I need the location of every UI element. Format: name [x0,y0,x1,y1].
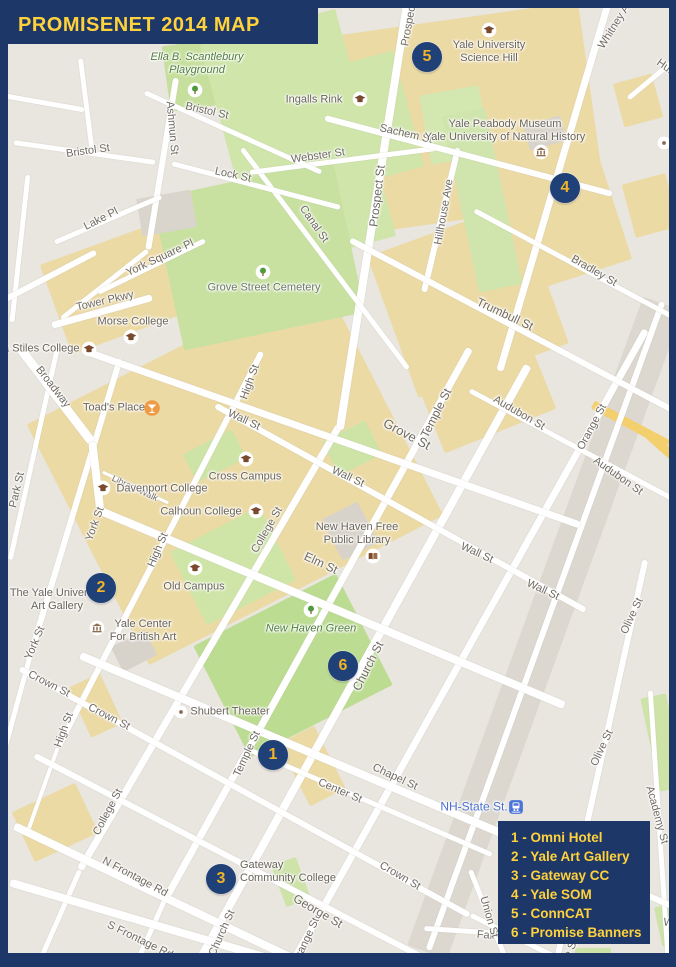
place-label: Ingalls Rink [286,94,343,107]
legend-item: 1 - Omni Hotel [511,828,650,847]
page-title: PROMISENET 2014 MAP [18,14,260,37]
place-label: Cross Campus [209,471,282,484]
map-marker-1: 1 [258,740,288,770]
graduation-cap-icon [352,91,368,107]
place-label: Morse College [98,316,169,329]
legend-item: 6 - Promise Banners [511,923,650,942]
map-screenshot-frame: Webster StBristol StBristol StAshmun StL… [0,0,676,967]
legend-item: 2 - Yale Art Gallery [511,847,650,866]
tree-icon [187,82,203,98]
street-label: Crown St [377,859,422,892]
road [78,58,95,153]
dot-icon [174,705,188,719]
graduation-cap-icon [81,341,97,357]
legend-item: 3 - Gateway CC [511,866,650,885]
map-marker-6: 6 [328,651,358,681]
place-label: Calhoun College [160,506,241,519]
place-label: New Haven Free Public Library [316,521,399,547]
street-label: Olive St [618,596,645,636]
street-label: Wall St [459,540,495,565]
map-marker-5: 5 [412,42,442,72]
graduation-cap-icon [123,329,139,345]
street-label: N Frontage Rd [100,855,169,899]
place-label: Ella B. Scantlebury Playground [151,51,244,77]
place-label: Davenport College [116,483,207,496]
tree-icon [303,602,319,618]
legend-item: 5 - ConnCAT [511,904,650,923]
map-marker-2: 2 [86,573,116,603]
place-label: Grove Street Cemetery [207,282,320,295]
tree-icon [255,264,271,280]
road [10,175,31,323]
street-label: York St [23,625,48,662]
place-label: Gateway Community College [240,859,336,885]
place-label: Yale Peabody Museum Yale University of N… [425,118,586,144]
border-bottom [0,953,676,967]
place-label: Shubert Theater [190,706,269,719]
street-label: High St [52,711,76,749]
road [0,93,85,113]
museum-icon [89,620,105,636]
place-label: New Haven Green [266,623,357,636]
border-left [0,0,8,967]
graduation-cap-icon [187,560,203,576]
map-marker-4: 4 [550,173,580,203]
graduation-cap-icon [95,480,111,496]
map-area [621,173,676,238]
place-label: Old Campus [163,581,224,594]
border-top [0,0,676,8]
place-label: Yale Center For British Art [110,618,177,644]
museum-icon [533,144,549,160]
legend-item: 4 - Yale SOM [511,885,650,904]
graduation-cap-icon [248,503,264,519]
graduation-cap-icon [481,22,497,38]
title-banner: PROMISENET 2014 MAP [6,6,318,44]
street-label: Olive St [588,728,615,768]
map-area [613,73,663,127]
train-icon [509,800,524,815]
graduation-cap-icon [238,451,254,467]
border-right [669,0,676,967]
cocktail-icon [144,400,161,417]
road [36,869,83,966]
place-label: Toad's Place [83,402,145,415]
street-label: Crown St [26,668,72,699]
place-label: NH-State St. [440,801,507,814]
place-label: Yale University Science Hill [453,39,526,65]
book-icon [365,548,381,564]
place-label: Ezra Stiles College [0,343,79,356]
map-legend: 1 - Omni Hotel2 - Yale Art Gallery3 - Ga… [498,821,650,944]
map-marker-3: 3 [206,864,236,894]
